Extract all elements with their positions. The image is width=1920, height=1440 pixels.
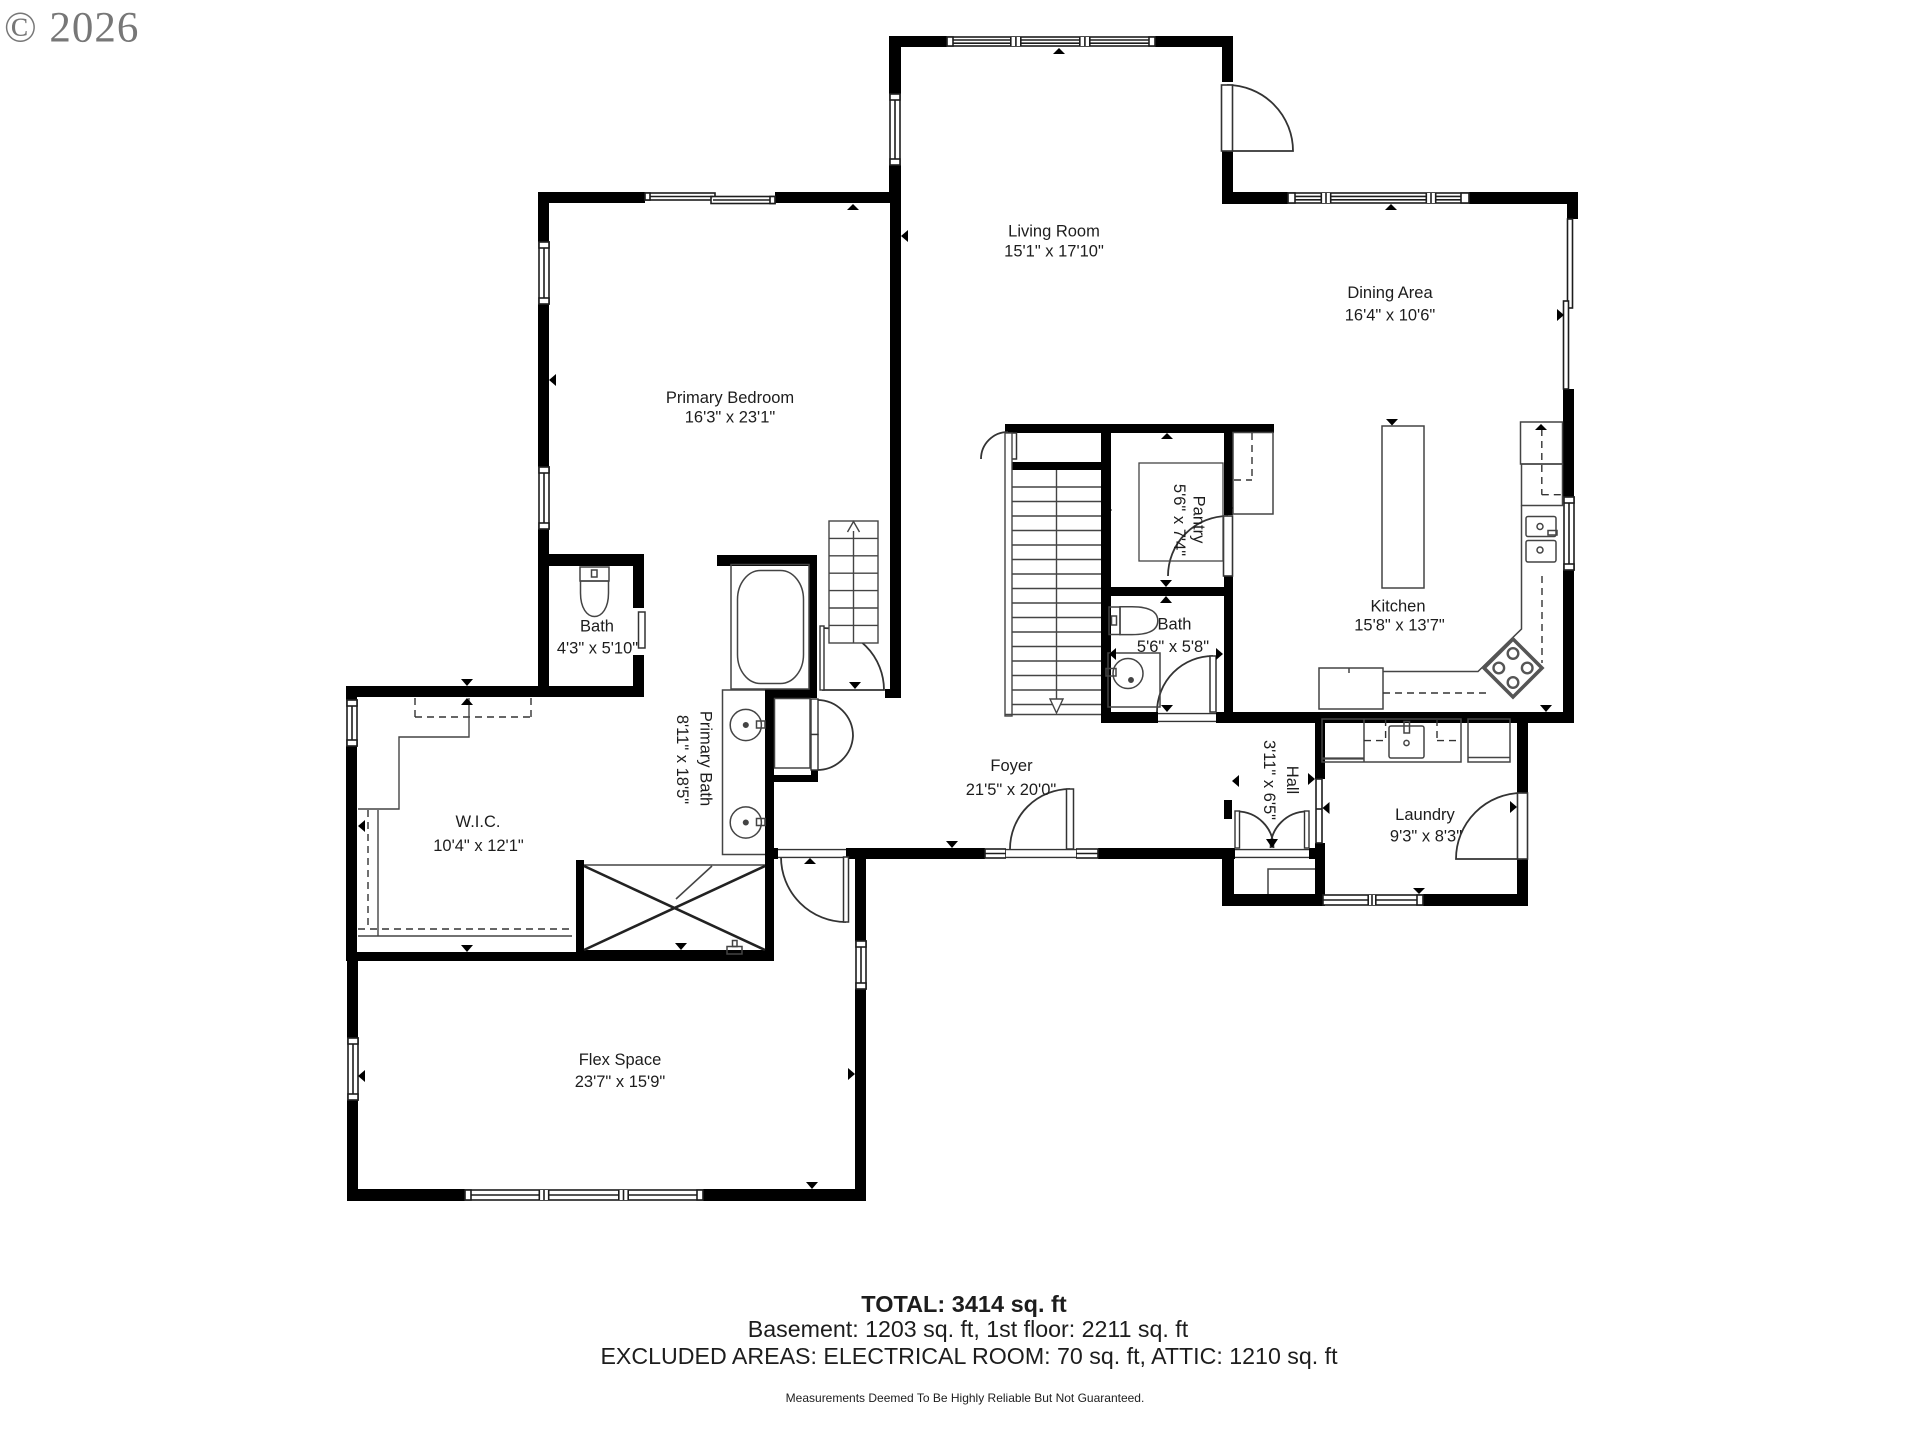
svg-text:16'4" x 10'6": 16'4" x 10'6" — [1345, 307, 1436, 325]
svg-text:Kitchen: Kitchen — [1370, 598, 1425, 616]
svg-text:Laundry: Laundry — [1395, 806, 1455, 824]
svg-text:4'3" x 5'10": 4'3" x 5'10" — [557, 640, 638, 658]
svg-text:Primary Bath: Primary Bath — [697, 711, 715, 806]
svg-text:23'7" x 15'9": 23'7" x 15'9" — [575, 1073, 666, 1091]
svg-text:TOTAL: 3414 sq. ft: TOTAL: 3414 sq. ft — [861, 1291, 1067, 1317]
svg-text:© 2026: © 2026 — [4, 5, 139, 52]
svg-text:Basement: 1203 sq. ft, 1st flo: Basement: 1203 sq. ft, 1st floor: 2211 s… — [748, 1316, 1189, 1342]
svg-text:15'8" x 13'7": 15'8" x 13'7" — [1354, 617, 1445, 635]
svg-text:Bath: Bath — [580, 618, 614, 636]
svg-text:9'3" x 8'3": 9'3" x 8'3" — [1390, 828, 1462, 846]
svg-text:Dining Area: Dining Area — [1347, 284, 1433, 302]
svg-text:Hall: Hall — [1283, 766, 1301, 794]
svg-text:Flex Space: Flex Space — [579, 1051, 662, 1069]
svg-text:5'6" x 5'8": 5'6" x 5'8" — [1137, 638, 1209, 656]
svg-text:16'3" x 23'1": 16'3" x 23'1" — [685, 409, 776, 427]
svg-text:Foyer: Foyer — [990, 757, 1033, 775]
svg-text:15'1" x 17'10": 15'1" x 17'10" — [1004, 243, 1104, 261]
svg-text:W.I.C.: W.I.C. — [456, 813, 501, 831]
svg-text:Primary Bedroom: Primary Bedroom — [666, 389, 794, 407]
svg-text:5'6" x 7'4": 5'6" x 7'4" — [1170, 484, 1188, 556]
svg-text:10'4" x 12'1": 10'4" x 12'1" — [433, 837, 524, 855]
svg-text:8'11" x 18'5": 8'11" x 18'5" — [673, 715, 691, 804]
svg-text:Bath: Bath — [1158, 616, 1192, 634]
svg-text:3'11" x 6'5": 3'11" x 6'5" — [1260, 740, 1278, 820]
svg-text:Living Room: Living Room — [1008, 223, 1100, 241]
svg-text:21'5" x 20'0": 21'5" x 20'0" — [966, 781, 1057, 799]
svg-text:Measurements Deemed To Be High: Measurements Deemed To Be Highly Reliabl… — [786, 1391, 1145, 1405]
svg-text:EXCLUDED AREAS: ELECTRICAL ROO: EXCLUDED AREAS: ELECTRICAL ROOM: 70 sq. … — [600, 1343, 1338, 1369]
svg-text:Pantry: Pantry — [1190, 496, 1208, 544]
